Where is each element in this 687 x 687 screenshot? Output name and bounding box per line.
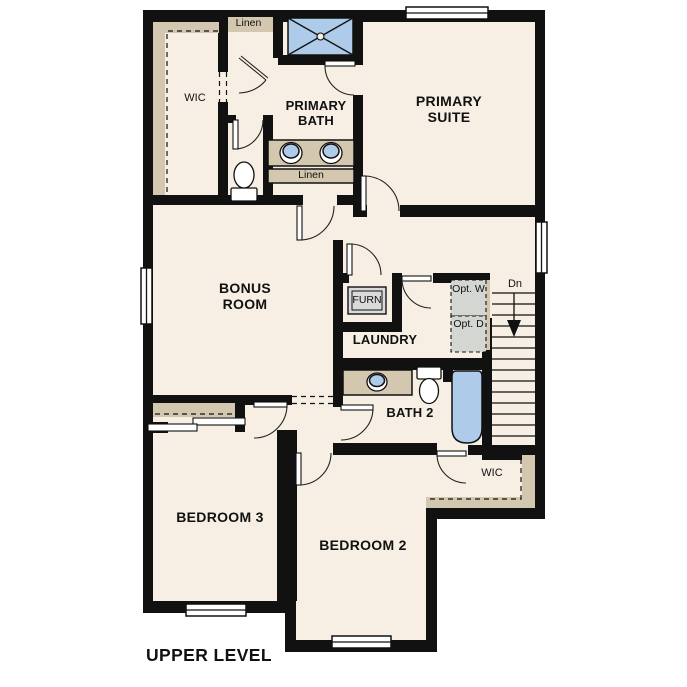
furnace-label: FURN: [348, 287, 386, 314]
opt-dryer-label: Opt. D: [451, 319, 486, 331]
linen-lower-label: Linen: [268, 170, 354, 182]
room-label-wic-bedroom2: WIC: [470, 467, 514, 479]
room-label-bath-2: BATH 2: [384, 406, 436, 421]
room-label-bedroom-2: BEDROOM 2: [298, 538, 428, 554]
room-label-bedroom-3: BEDROOM 3: [155, 510, 285, 526]
plan-title: UPPER LEVEL: [146, 646, 326, 666]
room-label-primary-suite: PRIMARY SUITE: [402, 94, 496, 125]
room-label-wic-primary: WIC: [173, 92, 217, 104]
shower: [288, 18, 353, 55]
room-label-primary-bath: PRIMARY BATH: [279, 99, 353, 128]
stairs-down-label: Dn: [502, 278, 528, 290]
opt-washer-label: Opt. W: [451, 284, 486, 296]
floor-plan: Linen WIC PRIMARY BATH PRIMARY SUITE Lin…: [0, 0, 687, 687]
bath2-vanity-sink: [367, 373, 387, 391]
room-label-laundry: LAUNDRY: [335, 333, 435, 348]
toilet-primary: [231, 162, 257, 201]
toilet-bath2: [417, 367, 441, 404]
bathtub: [452, 371, 482, 443]
linen-upper-label: Linen: [224, 18, 273, 30]
room-label-bonus-room: BONUS ROOM: [203, 281, 287, 312]
